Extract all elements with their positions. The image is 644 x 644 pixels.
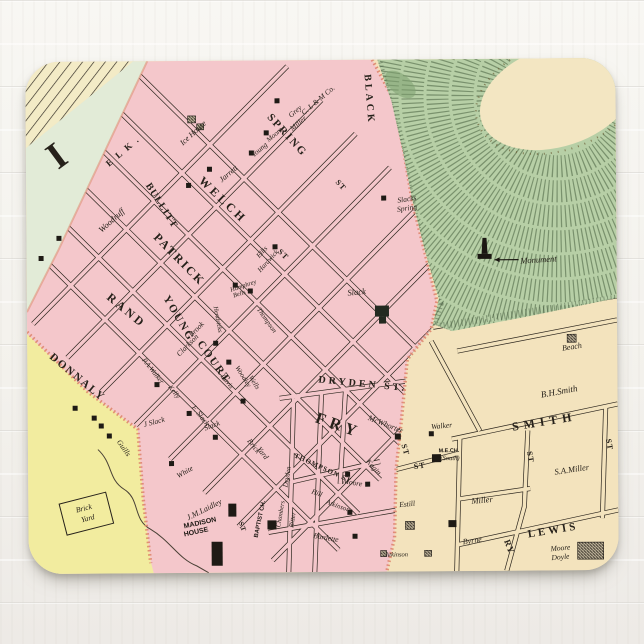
building-icon bbox=[578, 542, 604, 559]
building-icon bbox=[448, 520, 456, 527]
building-icon bbox=[381, 196, 386, 201]
building-icon bbox=[212, 542, 223, 566]
building-icon bbox=[73, 406, 78, 411]
vintage-map: E L K .SPRINGSTBLACKWELCHBULLITTPATRICKR… bbox=[25, 58, 619, 574]
building-icon bbox=[375, 306, 389, 317]
st-mech-label: ST bbox=[413, 461, 426, 472]
building-icon bbox=[56, 236, 61, 241]
estill-label: Estill bbox=[398, 499, 416, 510]
building-icon bbox=[405, 521, 414, 529]
me-church-label: M.E.CH. bbox=[439, 448, 460, 454]
atkinson-bottom-label: Atkinson bbox=[384, 551, 408, 558]
moore-doyle-2-label: Doyle bbox=[550, 551, 570, 562]
building-icon bbox=[241, 399, 246, 404]
building-icon bbox=[248, 288, 253, 293]
building-icon bbox=[213, 341, 218, 346]
building-icon bbox=[379, 317, 386, 324]
building-icon bbox=[188, 116, 196, 123]
building-icon bbox=[365, 482, 370, 487]
building-icon bbox=[213, 435, 218, 440]
building-icon bbox=[429, 431, 434, 436]
building-icon bbox=[425, 550, 432, 556]
building-icon bbox=[226, 360, 231, 365]
building-icon bbox=[353, 534, 358, 539]
mousepad: E L K .SPRINGSTBLACKWELCHBULLITTPATRICKR… bbox=[25, 58, 619, 574]
building-icon bbox=[187, 411, 192, 416]
building-icon bbox=[207, 167, 212, 172]
building-icon bbox=[274, 98, 279, 103]
building-icon bbox=[228, 504, 236, 517]
building-icon bbox=[99, 424, 104, 429]
building-icon bbox=[39, 256, 44, 261]
slack-hill-label: Slack bbox=[347, 286, 366, 298]
me-church-south-label: (South) bbox=[440, 455, 459, 462]
building-icon bbox=[92, 416, 97, 421]
building-icon bbox=[107, 433, 112, 438]
building-icon bbox=[169, 461, 174, 466]
building-icon bbox=[186, 183, 191, 188]
